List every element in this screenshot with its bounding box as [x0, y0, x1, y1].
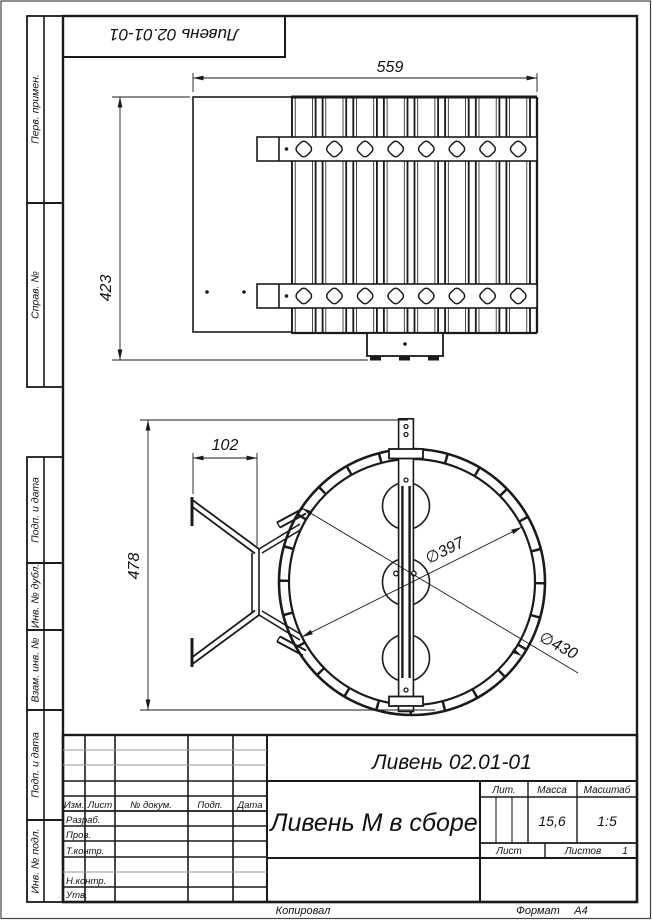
- margin-label-inv-podl: Инв. № подл.: [30, 828, 42, 893]
- dim-width-559: 559: [193, 59, 537, 92]
- margin-label-sprav-no: Справ. №: [30, 271, 42, 319]
- margin-label-vzam-inv: Взам. инв. №: [30, 638, 42, 703]
- massa-value: 15,6: [538, 813, 565, 829]
- row-prov: Пров.: [66, 830, 91, 841]
- format-value: А4: [573, 905, 587, 917]
- col-dokum: № докум.: [130, 800, 172, 811]
- row-t-kontr: Т.контр.: [66, 846, 104, 857]
- dim-outer-diameter: ∅430: [302, 508, 580, 673]
- col-list: Лист: [87, 800, 113, 811]
- margin-label-inv-dubl: Инв. № дубл.: [30, 564, 42, 629]
- lower-strap: [257, 284, 537, 308]
- masshtab-value: 1:5: [597, 813, 617, 829]
- dim-423-label: 423: [98, 275, 115, 302]
- footer: Копировал Формат А4: [276, 905, 588, 917]
- format-label: Формат: [516, 905, 560, 917]
- doc-designation: Ливень 02.01-01: [370, 751, 532, 774]
- central-bar: [389, 418, 423, 712]
- side-view: ∅397 ∅430 102 478: [126, 418, 580, 715]
- top-designation-text: Ливень 02.01-01: [109, 25, 239, 44]
- dim-397-label: ∅397: [423, 534, 468, 568]
- margin-label-perv-primen: Перв. примен.: [30, 74, 42, 144]
- front-view: 559 423: [98, 59, 537, 361]
- dim-430-label: ∅430: [536, 629, 580, 663]
- row-utv: Утв.: [65, 890, 88, 901]
- row-razrab: Разраб.: [66, 815, 100, 826]
- listov-value: 1: [622, 846, 628, 857]
- title-block: Изм. Лист № докум. Подп. Дата Разраб. Пр…: [63, 735, 637, 902]
- part-name: Ливень М в сборе: [268, 809, 477, 837]
- dim-offset-102: 102: [193, 437, 257, 546]
- list-label: Лист: [495, 846, 522, 857]
- listov-label: Листов: [564, 846, 601, 857]
- copied-label: Копировал: [276, 905, 331, 917]
- masshtab-label: Масштаб: [584, 784, 631, 796]
- lit-label: Лит.: [491, 785, 515, 796]
- drawing-sheet: Перв. примен. Справ. № Подп. и дата Инв.…: [0, 0, 652, 920]
- col-data: Дата: [236, 800, 262, 811]
- dim-102-label: 102: [212, 437, 239, 454]
- margin-label-podp-data-2: Подп. и дата: [30, 732, 42, 798]
- top-designation-stamp: Ливень 02.01-01: [63, 16, 285, 57]
- col-izm: Изм.: [64, 800, 84, 811]
- margin-label-podp-data-1: Подп. и дата: [30, 477, 42, 543]
- massa-label: Масса: [537, 785, 567, 796]
- drawing-canvas: Перв. примен. Справ. № Подп. и дата Инв.…: [0, 0, 652, 920]
- upper-strap: [257, 137, 537, 161]
- margin-stamps: Перв. примен. Справ. № Подп. и дата Инв.…: [27, 16, 63, 902]
- col-podp: Подп.: [197, 800, 222, 811]
- dim-559-label: 559: [377, 59, 404, 76]
- dim-478-label: 478: [126, 553, 143, 580]
- row-n-kontr: Н.контр.: [66, 876, 106, 887]
